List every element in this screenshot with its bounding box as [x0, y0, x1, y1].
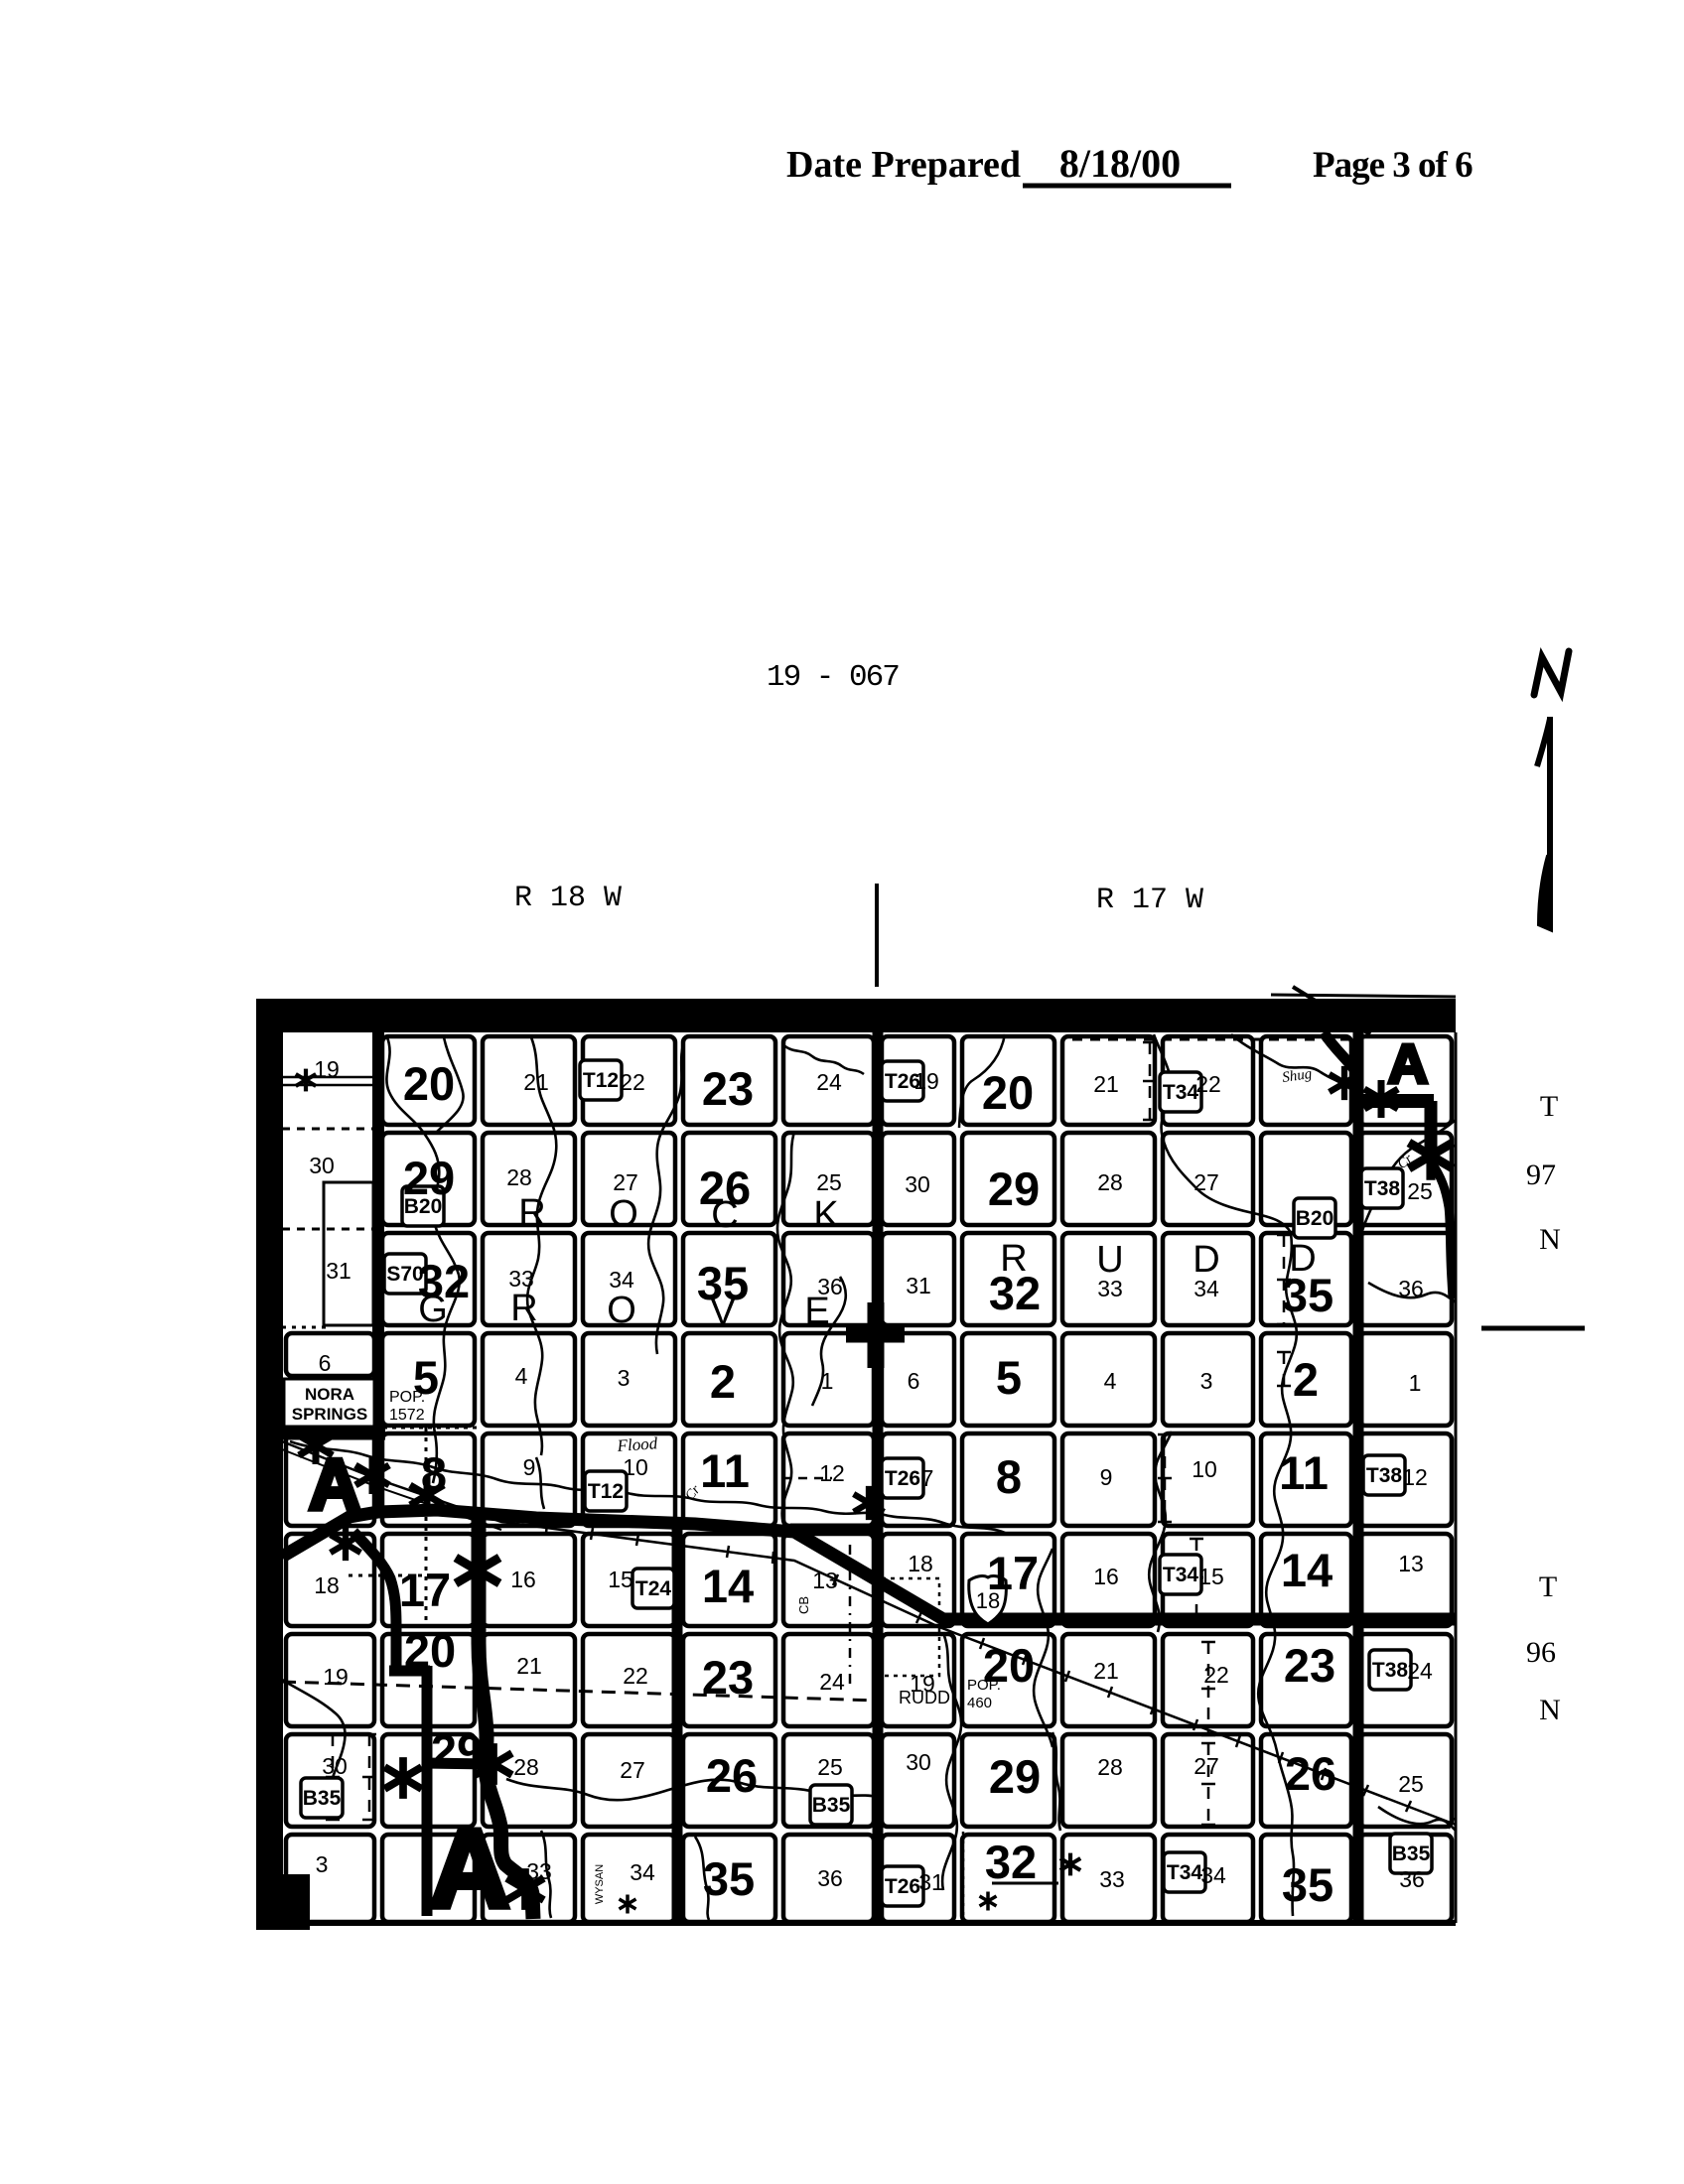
- svg-text:22: 22: [1195, 1071, 1221, 1097]
- svg-text:25: 25: [817, 1754, 843, 1780]
- svg-text:20: 20: [983, 1639, 1035, 1692]
- svg-text:Flood: Flood: [616, 1433, 658, 1455]
- svg-text:7: 7: [921, 1465, 934, 1491]
- svg-text:27: 27: [620, 1757, 645, 1783]
- svg-text:28: 28: [506, 1164, 532, 1190]
- svg-text:33: 33: [1099, 1866, 1125, 1892]
- svg-text:WYSAN: WYSAN: [594, 1864, 606, 1904]
- svg-text:N: N: [1539, 1694, 1561, 1726]
- svg-text:B35: B35: [1392, 1843, 1431, 1865]
- svg-text:12: 12: [1402, 1464, 1428, 1490]
- svg-text:2: 2: [1293, 1353, 1319, 1406]
- svg-text:T12: T12: [583, 1069, 619, 1092]
- svg-text:26: 26: [1285, 1747, 1336, 1800]
- svg-text:25: 25: [1407, 1178, 1433, 1204]
- svg-text:27: 27: [613, 1169, 638, 1195]
- svg-text:8: 8: [996, 1450, 1022, 1503]
- svg-text:19: 19: [314, 1056, 340, 1082]
- svg-text:36: 36: [817, 1865, 843, 1891]
- svg-text:9: 9: [1100, 1464, 1113, 1490]
- svg-text:T38: T38: [1366, 1464, 1403, 1487]
- svg-text:30: 30: [322, 1753, 348, 1779]
- svg-text:R: R: [518, 1192, 545, 1234]
- svg-text:19: 19: [323, 1664, 349, 1690]
- svg-text:Page 3 of 6: Page 3 of 6: [1313, 145, 1473, 186]
- svg-text:K: K: [813, 1194, 838, 1236]
- svg-text:19 - 067: 19 - 067: [767, 660, 899, 695]
- svg-text:10: 10: [1192, 1456, 1217, 1482]
- svg-text:14: 14: [702, 1560, 754, 1612]
- svg-text:24: 24: [816, 1069, 842, 1095]
- svg-text:6: 6: [908, 1368, 920, 1394]
- svg-text:19: 19: [913, 1068, 939, 1094]
- svg-text:30: 30: [905, 1171, 930, 1197]
- svg-text:T34: T34: [1163, 1564, 1199, 1586]
- svg-text:NORA: NORA: [305, 1385, 354, 1404]
- svg-text:3: 3: [316, 1851, 329, 1877]
- svg-text:28: 28: [513, 1754, 539, 1780]
- svg-text:30: 30: [309, 1153, 335, 1178]
- svg-text:15: 15: [608, 1567, 633, 1592]
- svg-text:D: D: [1289, 1238, 1316, 1280]
- svg-text:C: C: [711, 1194, 738, 1236]
- svg-text:19: 19: [910, 1671, 935, 1697]
- svg-text:13: 13: [1398, 1551, 1424, 1576]
- svg-text:T: T: [1539, 1570, 1557, 1603]
- svg-text:R: R: [1000, 1238, 1027, 1280]
- svg-text:14: 14: [1281, 1544, 1333, 1596]
- svg-text:5: 5: [996, 1351, 1022, 1404]
- svg-text:28: 28: [1097, 1754, 1123, 1780]
- svg-text:16: 16: [1093, 1564, 1119, 1589]
- svg-text:T38: T38: [1364, 1177, 1401, 1200]
- svg-text:25: 25: [1398, 1771, 1424, 1797]
- svg-text:29: 29: [403, 1152, 455, 1204]
- svg-text:T: T: [1540, 1090, 1558, 1123]
- svg-text:15: 15: [1198, 1564, 1224, 1589]
- svg-text:29: 29: [988, 1162, 1040, 1215]
- svg-text:34: 34: [630, 1859, 655, 1885]
- svg-text:O: O: [607, 1290, 636, 1331]
- svg-text:24: 24: [819, 1669, 845, 1695]
- svg-text:T26: T26: [885, 1467, 920, 1490]
- svg-text:29: 29: [989, 1750, 1041, 1803]
- svg-text:18: 18: [314, 1572, 340, 1598]
- svg-text:36: 36: [1398, 1276, 1424, 1301]
- svg-text:17: 17: [987, 1547, 1039, 1599]
- svg-text:34: 34: [1200, 1862, 1226, 1888]
- svg-text:27: 27: [1193, 1169, 1219, 1195]
- svg-text:E: E: [804, 1291, 829, 1332]
- svg-text:22: 22: [620, 1069, 645, 1095]
- svg-text:A: A: [1388, 1032, 1428, 1095]
- svg-text:1: 1: [1409, 1370, 1422, 1396]
- svg-text:D: D: [1193, 1239, 1219, 1281]
- svg-text:31: 31: [326, 1258, 351, 1284]
- svg-text:B35: B35: [303, 1787, 342, 1810]
- svg-text:35: 35: [703, 1852, 755, 1905]
- svg-text:T24: T24: [635, 1577, 672, 1600]
- svg-text:B35: B35: [812, 1794, 851, 1817]
- svg-text:35: 35: [1282, 1858, 1333, 1911]
- svg-text:SPRINGS: SPRINGS: [292, 1405, 368, 1424]
- svg-text:36: 36: [1399, 1866, 1425, 1892]
- svg-text:27: 27: [1193, 1753, 1219, 1779]
- svg-text:B20: B20: [1296, 1207, 1334, 1230]
- svg-text:32: 32: [985, 1836, 1037, 1888]
- svg-text:A: A: [430, 1807, 510, 1931]
- svg-text:11: 11: [700, 1444, 750, 1497]
- svg-text:T12: T12: [588, 1480, 624, 1503]
- svg-text:22: 22: [623, 1663, 648, 1689]
- svg-text:13: 13: [812, 1568, 838, 1593]
- svg-text:20: 20: [403, 1057, 455, 1110]
- svg-text:V: V: [710, 1292, 736, 1333]
- svg-text:20: 20: [982, 1066, 1034, 1119]
- svg-text:9: 9: [523, 1454, 536, 1480]
- svg-text:1: 1: [821, 1368, 834, 1394]
- svg-text:6: 6: [319, 1350, 332, 1376]
- svg-text:U: U: [1096, 1239, 1123, 1281]
- svg-text:O: O: [609, 1193, 638, 1235]
- svg-text:4: 4: [1104, 1368, 1117, 1394]
- svg-text:18: 18: [908, 1551, 933, 1576]
- svg-text:T34: T34: [1167, 1861, 1203, 1884]
- svg-text:17: 17: [399, 1564, 451, 1616]
- svg-text:5: 5: [413, 1351, 439, 1404]
- svg-text:22: 22: [1203, 1662, 1229, 1688]
- svg-text:31: 31: [906, 1273, 931, 1298]
- svg-text:23: 23: [702, 1651, 754, 1704]
- svg-text:24: 24: [1407, 1658, 1433, 1684]
- svg-text:25: 25: [816, 1169, 842, 1195]
- svg-text:23: 23: [1284, 1639, 1335, 1692]
- svg-text:T38: T38: [1372, 1659, 1409, 1682]
- svg-text:G: G: [418, 1289, 448, 1330]
- svg-text:28: 28: [1097, 1169, 1123, 1195]
- svg-text:R: R: [510, 1288, 537, 1329]
- svg-text:1572: 1572: [389, 1407, 425, 1424]
- svg-text:N: N: [1539, 1223, 1561, 1256]
- svg-text:26: 26: [706, 1749, 758, 1802]
- svg-text:3: 3: [1200, 1368, 1213, 1394]
- svg-text:CB: CB: [796, 1596, 811, 1614]
- svg-text:21: 21: [1093, 1071, 1119, 1097]
- svg-text:11: 11: [1279, 1446, 1329, 1499]
- svg-text:97: 97: [1526, 1159, 1556, 1191]
- svg-text:R 17 W: R 17 W: [1096, 884, 1203, 917]
- svg-text:21: 21: [516, 1653, 542, 1679]
- svg-text:30: 30: [906, 1749, 931, 1775]
- svg-text:96: 96: [1526, 1636, 1556, 1669]
- svg-text:16: 16: [510, 1567, 536, 1592]
- svg-text:8/18/00: 8/18/00: [1059, 141, 1181, 186]
- svg-text:12: 12: [819, 1460, 845, 1486]
- svg-text:4: 4: [515, 1363, 528, 1389]
- svg-text:R 18 W: R 18 W: [514, 882, 622, 915]
- svg-text:3: 3: [618, 1365, 631, 1391]
- svg-text:29: 29: [431, 1724, 483, 1777]
- svg-text:Date Prepared: Date Prepared: [786, 144, 1021, 186]
- svg-text:10: 10: [623, 1454, 648, 1480]
- svg-text:T34: T34: [1163, 1081, 1199, 1104]
- svg-text:21: 21: [1093, 1658, 1119, 1684]
- svg-text:20: 20: [404, 1624, 456, 1677]
- svg-text:460: 460: [967, 1695, 992, 1711]
- svg-text:2: 2: [710, 1355, 736, 1408]
- svg-text:31: 31: [918, 1869, 944, 1895]
- svg-text:T26: T26: [885, 1875, 920, 1898]
- svg-text:23: 23: [702, 1062, 754, 1115]
- svg-text:21: 21: [523, 1069, 549, 1095]
